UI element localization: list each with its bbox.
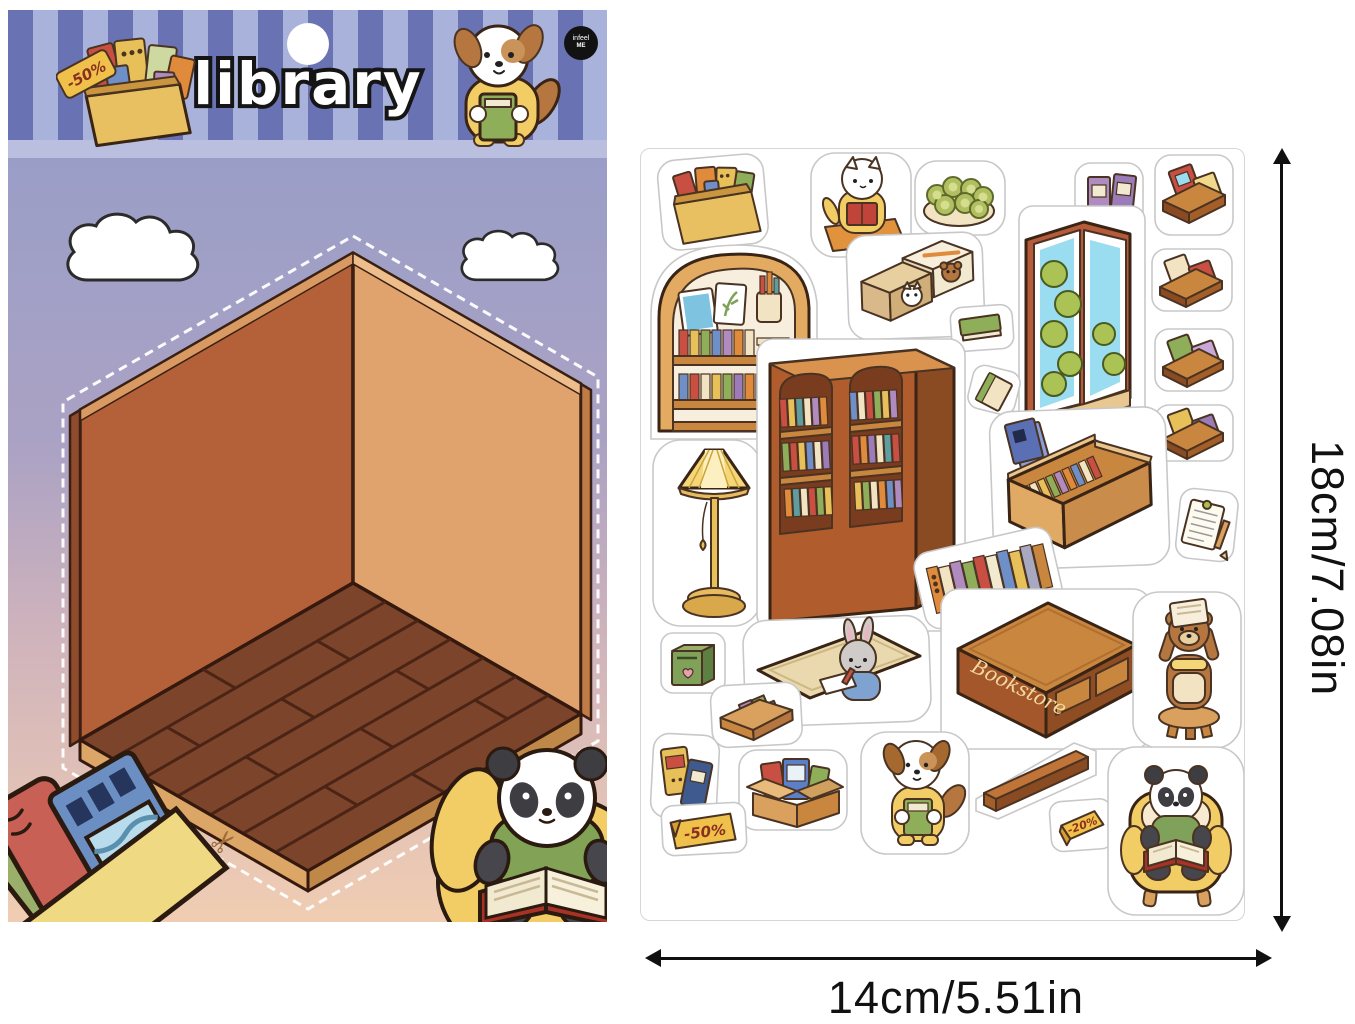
sale-50-tag-sticker: -50% xyxy=(661,802,748,856)
green-bin-sticker xyxy=(661,633,725,693)
width-dimension-line xyxy=(660,957,1256,960)
brand-badge: infeel ME xyxy=(564,26,598,60)
corner-window-sticker xyxy=(1019,206,1145,436)
brand-badge-line2: ME xyxy=(564,43,598,50)
clipboard-note-sticker xyxy=(1174,487,1239,563)
brand-badge-line1: infeel xyxy=(564,35,598,43)
floor-lamp-sticker xyxy=(653,440,761,626)
width-dimension-label: 14cm/5.51in xyxy=(791,972,1121,1024)
box-of-books-sticker xyxy=(656,153,769,252)
bear-on-stool-sticker xyxy=(1133,592,1241,748)
sticker-sheet: Bookstore xyxy=(640,148,1245,921)
book-display-stand-3 xyxy=(1155,329,1233,391)
page-title: library xyxy=(193,50,422,118)
arrow-down-icon xyxy=(1273,916,1291,932)
book-box-sticker: -50% xyxy=(56,32,201,150)
backdrop-card: library -50% xyxy=(8,10,607,922)
product-image: { "card": { "title": "library", "badge":… xyxy=(0,0,1355,1024)
kiwi-bowl-sticker xyxy=(915,161,1005,235)
arrow-left-icon xyxy=(645,949,661,967)
panda-armchair-sticker xyxy=(1108,747,1244,915)
height-dimension-label: 18cm/7.08in xyxy=(1301,440,1353,680)
sale-20-tent-sticker: -20% xyxy=(1049,798,1114,852)
puppy-sticker xyxy=(436,22,568,152)
dog-reading-sticker xyxy=(861,732,971,854)
book-tray-sticker xyxy=(710,682,803,749)
arrow-up-icon xyxy=(1273,148,1291,164)
bookstore-counter-sticker: Bookstore xyxy=(941,589,1151,749)
room-backdrop-art: ✂ xyxy=(8,158,607,922)
book-display-stand-2 xyxy=(1152,249,1232,311)
arrow-right-icon xyxy=(1256,949,1272,967)
tilted-book-sticker xyxy=(965,363,1022,417)
height-dimension-line xyxy=(1280,162,1283,918)
book-display-stand-1 xyxy=(1155,155,1233,235)
cardboard-box-books-sticker xyxy=(739,750,847,830)
